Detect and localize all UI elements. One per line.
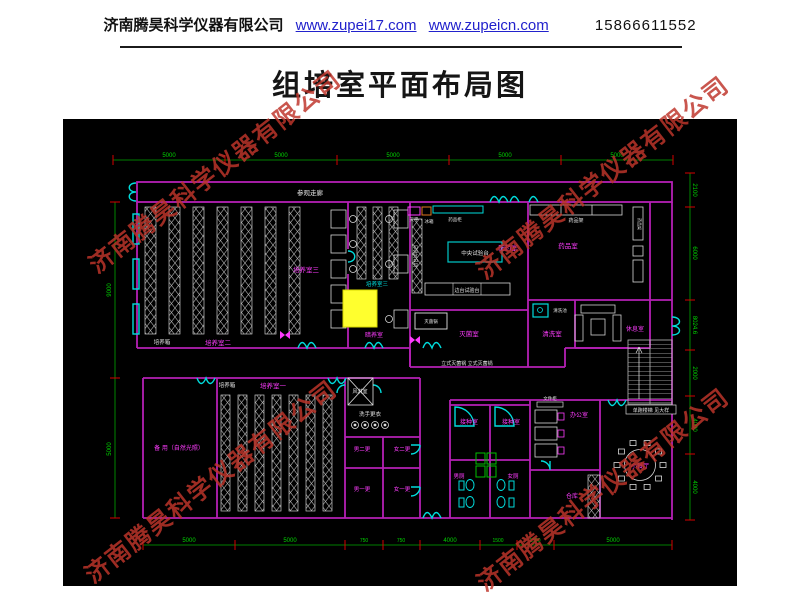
label-miejunguo: 灭菌锅 [424,318,438,325]
dim-right-4: 2000 [691,366,697,380]
dim-left-2: 5000 [107,442,113,456]
dim-bot-5: 4000 [443,538,457,544]
dim-top-4: 5000 [498,153,512,159]
dim-bot-1: 5000 [182,538,196,544]
label-xiuxi: 休息室 [626,325,644,333]
dim-bot-6: 1500 [492,538,503,544]
dim-right-1: 2100 [691,183,697,197]
label-peiyao: 配药室 [498,243,518,252]
label-man-wc: 男厕 [453,473,465,480]
air-shower [348,378,389,429]
label-cult3: 培养室三 [293,265,320,274]
label-side-bench-v: 边台试验台 [412,244,419,267]
dim-bot-8: 5000 [606,538,620,544]
dim-bot-7: 1500 [529,538,540,544]
culture-racks-room1 [221,395,332,511]
label-lishi-miejunguo: 立式灭菌锅 立式灭菌锅 [441,360,492,367]
label-xishou: 洗手更衣 [359,410,382,418]
header: 济南腾昊科学仪器有限公司 www.zupei17.com www.zupeicn… [0,14,800,35]
stairs [626,340,676,414]
label-man1: 男一更 [354,486,371,493]
label-backup: 备 用（自然光照） [154,444,204,452]
label-dining: 小餐厅 [631,462,649,470]
office-desks [535,402,564,457]
label-corridor: 参观走廊 [297,188,324,197]
page: 济南腾昊科学仪器有限公司 www.zupei17.com www.zupeicn… [0,0,800,600]
label-yaopin: 药品室 [558,241,578,250]
label-office: 办公室 [570,411,588,419]
culture-racks-room2 [145,207,300,334]
label-wenjiangui: 文件柜 [543,395,557,402]
label-yaopingui: 药品柜 [448,216,462,223]
label-miejun: 灭菌室 [459,329,479,338]
sofa-set [575,305,621,341]
link-zupeicn[interactable]: www.zupeicn.com [429,17,549,34]
dim-right-6: 4000 [691,480,697,494]
door-man1 [411,487,420,496]
window-3 [133,304,139,334]
window-2 [133,259,139,289]
culture-racks-room3 [357,207,398,279]
yellow-highlight [343,290,377,327]
label-incubator-2: 培养箱 [219,381,236,389]
dim-left-1: 9000 [107,283,113,297]
dim-bot-2: 5000 [283,538,297,544]
label-cangku: 仓库 [566,492,578,500]
dim-right-3: 8024.6 [691,316,697,335]
warehouse-rack [588,475,600,518]
page-title: 组培室平面布局图 [0,62,800,104]
dim-bot-3: 750 [360,538,369,544]
door-office [541,461,550,470]
dim-top-1: 5000 [162,153,176,159]
company-name: 济南腾昊科学仪器有限公司 [103,17,283,34]
label-cult3b: 培养室三 [366,280,389,288]
label-woman2: 女二更 [394,445,411,453]
label-incubator-1: 培养箱 [154,338,171,346]
dim-right-2: 6000 [691,246,697,260]
dim-right-5: 4000 [691,418,697,432]
label-man2: 男二更 [354,446,371,453]
phone-number: 15866611552 [595,17,697,34]
toilet-fixtures [459,453,514,508]
label-central-bench: 中央试验台 [461,249,489,257]
floor-plan-canvas: 5000 5000 5000 5000 5000 5000 5000 750 7… [63,119,737,586]
dim-top-5: 5000 [610,153,624,159]
window-1 [133,214,139,244]
label-cult2: 培养室二 [205,338,232,347]
door-miejun [423,343,441,349]
link-zupei17[interactable]: www.zupei17.com [296,17,417,34]
door-man2 [411,445,420,454]
floor-plan-svg: 5000 5000 5000 5000 5000 5000 5000 750 7… [63,119,737,586]
label-jiezhong-1: 接种室 [460,418,478,426]
header-divider [120,46,682,48]
door-right-wall [672,317,680,335]
label-qingxichi: 清洗池 [553,307,567,314]
dim-top-2: 5000 [274,153,288,159]
label-stair-note: 单跑楼梯 见大样 [633,407,669,414]
label-jiezhong-2: 接种室 [502,418,520,426]
door-corridor-left [129,183,136,201]
label-bingxiang: 冰箱 [425,218,434,225]
dim-top-3: 5000 [386,153,400,159]
label-woman1: 女一更 [394,485,411,493]
label-cult1: 培养室一 [260,381,287,390]
label-yaopinjia-v: 药品架 [637,218,643,230]
label-fenglin: 风淋室 [352,388,367,395]
label-dark-room: 暗养室 [365,331,383,339]
label-side-bench: 边台试验台 [454,287,479,294]
label-qingxi: 清洗室 [542,329,562,338]
yaopin-shelves [530,205,643,282]
label-yaopinjia: 药品架 [568,217,583,224]
label-woman-wc: 女厕 [507,472,519,480]
dim-bot-4: 750 [397,538,406,544]
door-cult3 [348,251,355,262]
drain-symbols [280,331,420,344]
